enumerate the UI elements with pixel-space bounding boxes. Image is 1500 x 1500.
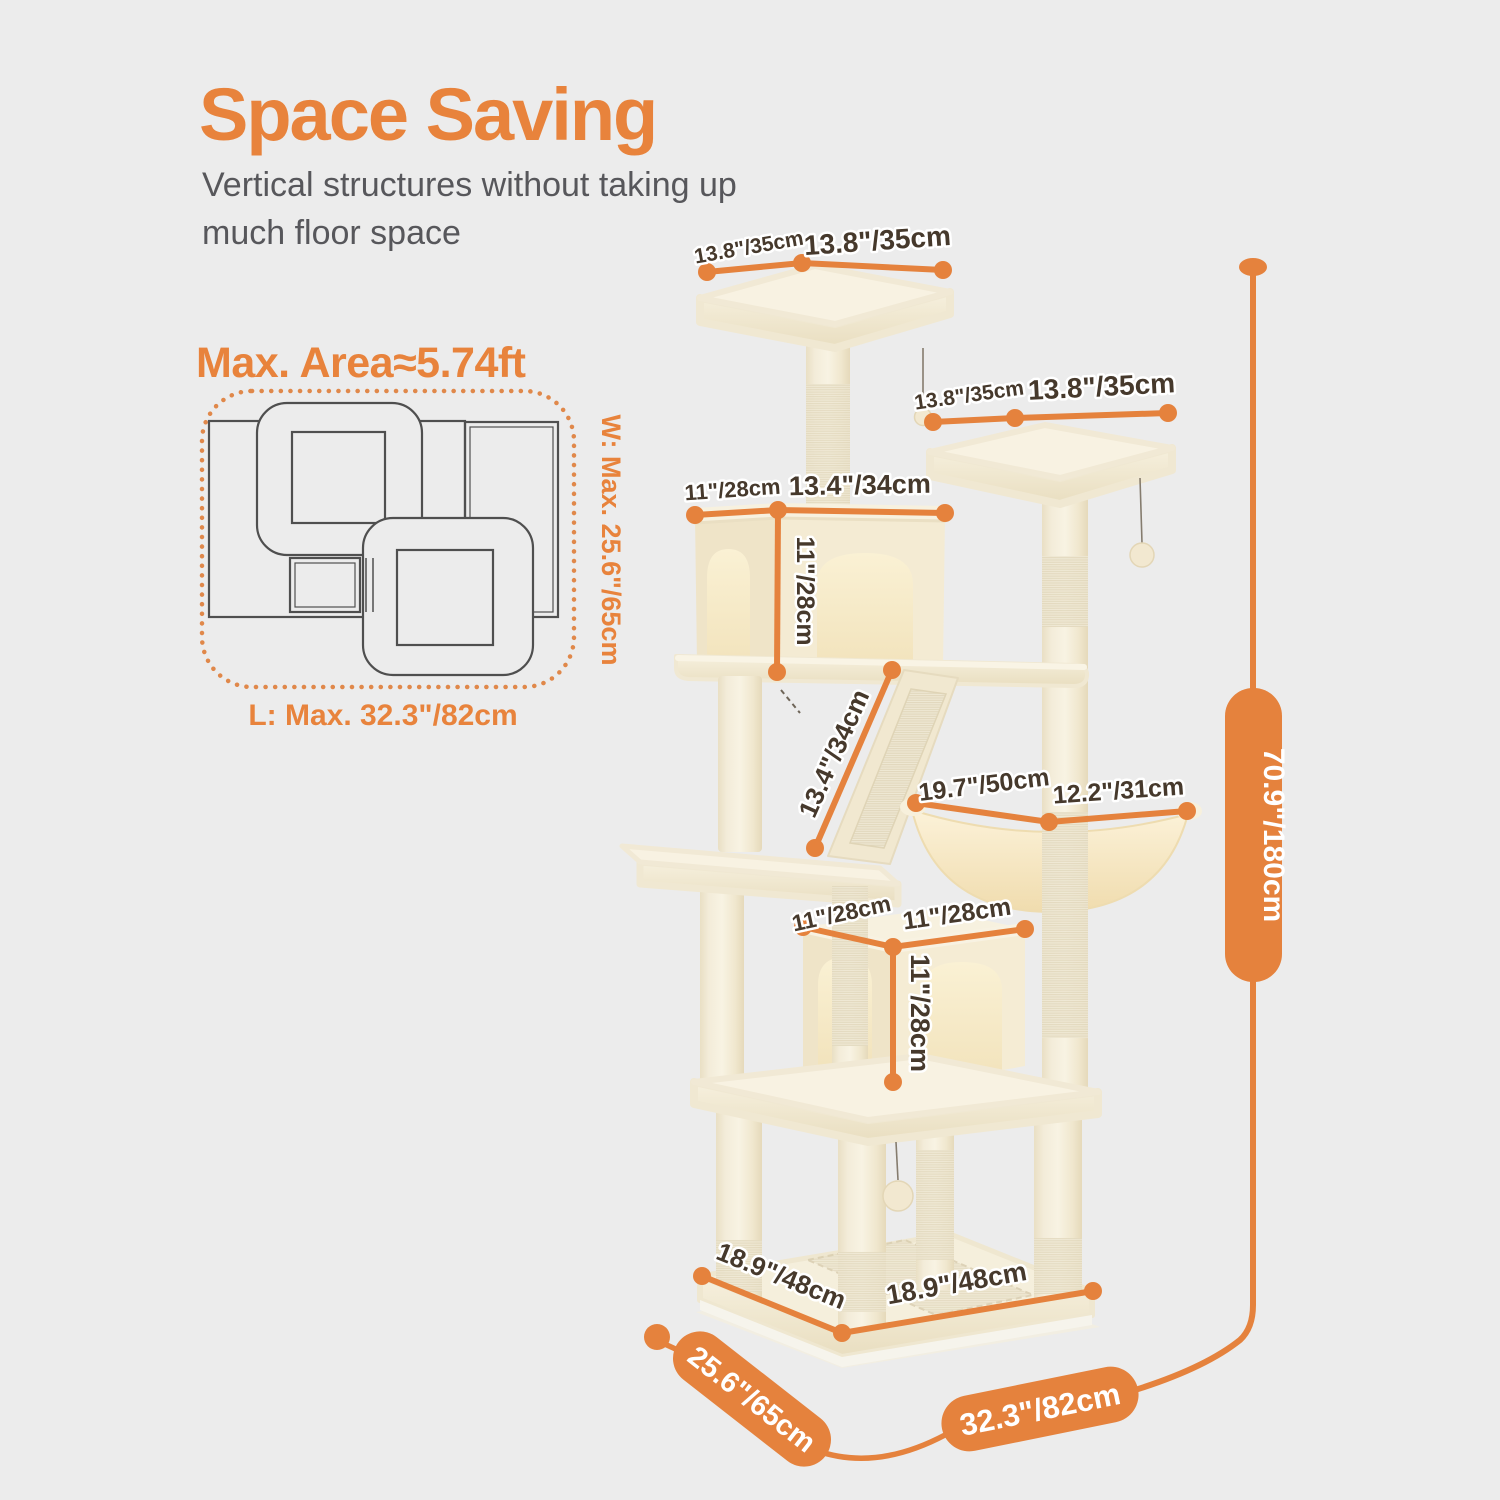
toy-string (781, 690, 800, 713)
subtitle-line2: much floor space (202, 214, 461, 252)
overall-height-capsule: 70.9"/180cm (1225, 688, 1290, 982)
subtitle-line1: Vertical structures without taking up (202, 166, 737, 204)
area-length-label: L: Max. 32.3"/82cm (248, 699, 517, 732)
max-area-diagram: Max. Area≈5.74ft W: Max. 25.6"/65cm L: M… (196, 339, 626, 732)
dimension-endpoint-dot (1239, 258, 1267, 276)
overall-height-label: 70.9"/180cm (1257, 748, 1290, 922)
dim-second-platform-left: 13.8"/35cm (913, 376, 1026, 414)
support-post (700, 878, 744, 1106)
dim-top-platform-right: 13.8"/35cm (803, 220, 952, 261)
dim-second-platform-right: 13.8"/35cm (1027, 367, 1176, 406)
top-platform (700, 266, 950, 348)
second-platform (930, 425, 1172, 504)
pompom-ball (883, 1181, 913, 1211)
support-post (718, 676, 762, 852)
toy-string (1140, 478, 1142, 543)
overall-width-capsule: 32.3"/82cm (936, 1362, 1143, 1457)
dim-upper-condo-height: 11"/28cm (791, 536, 819, 645)
condo-door (817, 553, 913, 668)
max-area-title: Max. Area≈5.74ft (196, 339, 526, 387)
pompom-ball (1130, 543, 1154, 567)
dim-lower-condo-height: 11"/28cm (905, 954, 935, 1072)
dim-hammock-width: 19.7"/50cm (917, 763, 1051, 807)
dim-upper-condo-width: 13.4"/34cm (789, 469, 931, 501)
dim-upper-condo-depth: 11"/28cm (684, 474, 782, 506)
dimension-endpoint-dot (644, 1324, 670, 1350)
upper-condo (695, 510, 945, 672)
toy-string (896, 1142, 898, 1180)
page-title: Space Saving (199, 73, 656, 156)
condo-door (707, 549, 750, 666)
infographic-canvas: Space Saving Vertical structures without… (0, 0, 1500, 1500)
area-width-label: W: Max. 25.6"/65cm (596, 415, 626, 666)
floorplan-shapes (209, 403, 558, 675)
product-infographic: Space Saving Vertical structures without… (0, 0, 1500, 1500)
header: Space Saving Vertical structures without… (199, 73, 737, 252)
overall-depth-label: 25.6"/65cm (681, 1340, 821, 1459)
